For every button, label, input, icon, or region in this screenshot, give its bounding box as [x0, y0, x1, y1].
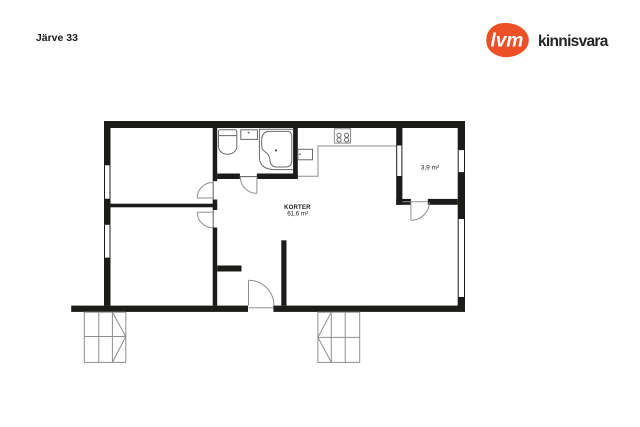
svg-text:Järve 33: Järve 33	[36, 32, 78, 44]
svg-text:kinnisvara: kinnisvara	[538, 33, 609, 50]
svg-text:61,6 m²: 61,6 m²	[287, 210, 308, 217]
svg-text:3,9 m²: 3,9 m²	[421, 165, 440, 172]
svg-text:lvm: lvm	[491, 31, 524, 52]
